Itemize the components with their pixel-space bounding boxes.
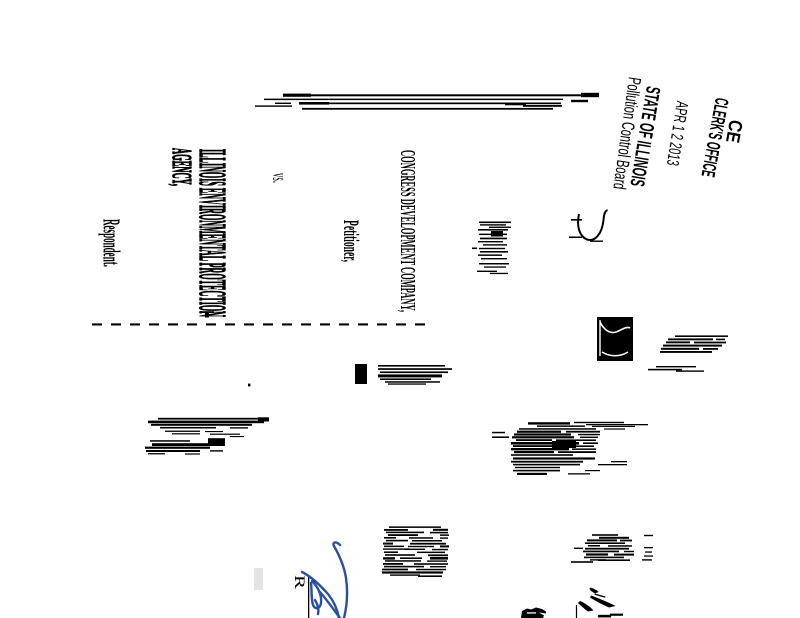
svg-text:R: R (291, 575, 307, 589)
svg-text:vs.: vs. (268, 173, 290, 183)
svg-text:Petitioner,: Petitioner, (339, 220, 364, 262)
svg-text:CONGRESS DEVELOPMENT COMPANY,: CONGRESS DEVELOPMENT COMPANY, (396, 150, 420, 312)
svg-text:Respondent.: Respondent. (98, 219, 124, 267)
svg-text:AGENCY,: AGENCY, (167, 148, 197, 186)
